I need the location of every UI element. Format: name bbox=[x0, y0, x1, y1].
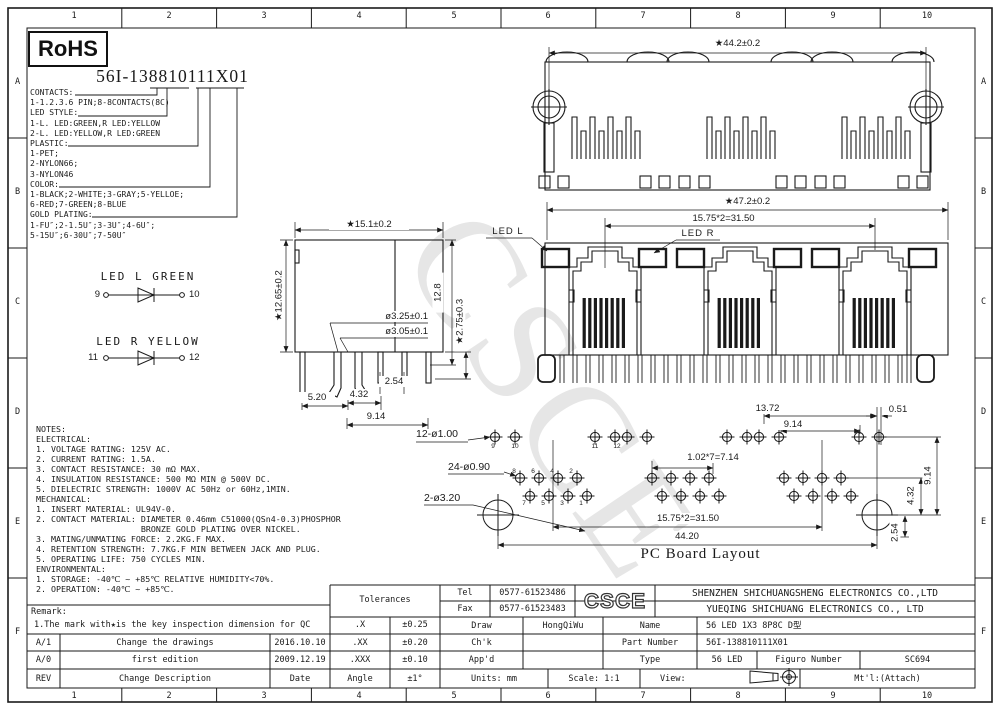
dim-520: 5.20 bbox=[299, 392, 335, 403]
pcb-pin-label: 8 bbox=[509, 468, 519, 476]
tol-val: ±0.10 bbox=[390, 655, 440, 665]
notes-block: NOTES: ELECTRICAL: 1. VOLTAGE RATING: 12… bbox=[36, 424, 341, 594]
col-label: 9 bbox=[818, 11, 848, 21]
pcb-dim-051: 0.51 bbox=[884, 404, 912, 415]
rev-id: A/0 bbox=[27, 655, 60, 665]
pcb-pin-label: 12 bbox=[612, 443, 622, 451]
pcb-dim-714: 1.02*7=7.14 bbox=[681, 452, 745, 463]
led-l-title: LED L GREEN bbox=[93, 271, 203, 284]
dim-side-depth: 12.8 bbox=[432, 273, 443, 313]
col-label: 3 bbox=[249, 11, 279, 21]
scale-label: Scale: 1:1 bbox=[548, 674, 640, 684]
col-label: 1 bbox=[59, 691, 89, 701]
dim-front-pitch: 15.75*2=31.50 bbox=[676, 213, 771, 224]
dim-side-width: ★15.1±0.2 bbox=[329, 219, 409, 230]
view-label: View: bbox=[660, 674, 710, 684]
figure-number-label: Figuro Number bbox=[757, 655, 860, 665]
company-line-1: SHENZHEN SHICHUANGSHENG ELECTRONICS CO.,… bbox=[657, 588, 973, 599]
col-label: 5 bbox=[439, 11, 469, 21]
pcb-pin-label: 3 bbox=[557, 500, 567, 508]
pcb-pin-holes-label: 24-ø0.90 bbox=[448, 461, 510, 473]
tel-label: Tel bbox=[440, 588, 490, 598]
row-label: E bbox=[974, 517, 993, 527]
col-label: 3 bbox=[249, 691, 279, 701]
pcb-pin-label: 7 bbox=[519, 500, 529, 508]
fax-value: 0577-61523483 bbox=[490, 604, 575, 614]
pcb-led-holes-label: 12-ø1.00 bbox=[416, 428, 478, 440]
label-led-r: LED R bbox=[676, 228, 720, 239]
col-label: 2 bbox=[154, 11, 184, 21]
led-l-pin-a: 9 bbox=[80, 289, 100, 300]
dim-914: 9.14 bbox=[358, 411, 394, 422]
dim-hole-b: ø3.05±0.1 bbox=[352, 326, 428, 337]
pcb-dim-914h: 9.14 bbox=[776, 419, 810, 430]
row-label: B bbox=[8, 187, 27, 197]
col-label: 4 bbox=[344, 691, 374, 701]
row-label: A bbox=[974, 77, 993, 87]
pcb-dim-4420: 44.20 bbox=[666, 531, 708, 542]
tolerances-header: Tolerances bbox=[330, 595, 440, 605]
dim-hole-a: ø3.25±0.1 bbox=[352, 311, 428, 322]
units-label: Units: mm bbox=[440, 674, 548, 684]
pcb-pin-label: 2 bbox=[566, 468, 576, 476]
row-label: A bbox=[8, 77, 27, 87]
rev-date: 2009.12.19 bbox=[270, 655, 330, 665]
row-label: F bbox=[974, 627, 993, 637]
rev-desc: first edition bbox=[60, 655, 270, 665]
pcb-pin-label: 5 bbox=[538, 500, 548, 508]
dim-254: 2.54 bbox=[379, 376, 409, 387]
type-label: Type bbox=[603, 655, 697, 665]
pcb-pin-label: 9 bbox=[488, 443, 498, 451]
col-label: 4 bbox=[344, 11, 374, 21]
col-label: 2 bbox=[154, 691, 184, 701]
company-line-2: YUEQING SHICHUANG ELECTRONICS CO., LTD bbox=[657, 604, 973, 615]
dim-432: 4.32 bbox=[341, 389, 377, 400]
col-label: 5 bbox=[439, 691, 469, 701]
pcb-pin-label: 4 bbox=[547, 468, 557, 476]
led-r-title: LED R YELLOW bbox=[93, 336, 203, 349]
part-number-breakdown: CONTACTS: 1-1.2.3.6 PIN;8-8CONTACTS(8C) … bbox=[30, 88, 184, 241]
col-label: 7 bbox=[628, 11, 658, 21]
led-r-pin-b: 12 bbox=[189, 352, 209, 363]
pcb-title: PC Board Layout bbox=[628, 546, 773, 564]
tel-value: 0577-61523486 bbox=[490, 588, 575, 598]
figure-number-value: SC694 bbox=[860, 655, 975, 665]
remark-label: Remark: bbox=[31, 607, 67, 617]
rohs-logo: RoHS bbox=[28, 31, 108, 67]
tol-key: .XX bbox=[330, 638, 390, 648]
pcb-pin-label: 11 bbox=[590, 443, 600, 451]
rev-id: A/1 bbox=[27, 638, 60, 648]
col-label: 8 bbox=[723, 691, 753, 701]
remark-line: 1.The mark with★is the key inspection di… bbox=[34, 620, 310, 630]
drawing-sheet: CSCE bbox=[0, 0, 1000, 710]
row-label: D bbox=[8, 407, 27, 417]
led-l-pin-b: 10 bbox=[189, 289, 209, 300]
fax-label: Fax bbox=[440, 604, 490, 614]
rev-desc: Change Description bbox=[60, 674, 270, 684]
tol-key: Angle bbox=[330, 674, 390, 684]
col-label: 10 bbox=[912, 11, 942, 21]
draw-label: Draw bbox=[440, 621, 523, 631]
pcb-dim-432v: 4.32 bbox=[905, 479, 916, 513]
part-number-value: 56I-138810111X01 bbox=[706, 638, 971, 648]
row-label: B bbox=[974, 187, 993, 197]
rev-date: Date bbox=[270, 674, 330, 684]
col-label: 10 bbox=[912, 691, 942, 701]
label-led-l: LED L bbox=[486, 226, 530, 237]
row-label: C bbox=[8, 297, 27, 307]
name-value: 56 LED 1X3 8P8C D型 bbox=[706, 621, 971, 631]
tol-key: .X bbox=[330, 620, 390, 630]
col-label: 9 bbox=[818, 691, 848, 701]
csce-logo: CSCE bbox=[575, 590, 655, 615]
tol-val: ±0.20 bbox=[390, 638, 440, 648]
dim-side-tail: ★2.75±0.3 bbox=[454, 292, 465, 352]
pcb-dim-3150: 15.75*2=31.50 bbox=[645, 513, 731, 524]
dim-top-width: ★44.2±0.2 bbox=[690, 38, 785, 49]
col-label: 7 bbox=[628, 691, 658, 701]
draw-value: HongQiWu bbox=[523, 621, 603, 631]
col-label: 1 bbox=[59, 11, 89, 21]
pcb-pin-label: 1 bbox=[576, 500, 586, 508]
row-label: F bbox=[8, 627, 27, 637]
rev-desc: Change the drawings bbox=[60, 638, 270, 648]
row-label: D bbox=[974, 407, 993, 417]
led-r-pin-a: 11 bbox=[78, 352, 98, 363]
dim-front-width: ★47.2±0.2 bbox=[700, 196, 795, 207]
type-value: 56 LED bbox=[697, 655, 757, 665]
appd-label: App'd bbox=[440, 655, 523, 665]
material-label: Mt'l:(Attach) bbox=[800, 674, 975, 684]
pcb-dim-914v: 9.14 bbox=[922, 459, 933, 493]
name-label: Name bbox=[603, 621, 697, 631]
part-number-heading: 56I-138810111X01 bbox=[90, 66, 255, 87]
pcb-pin-label: 10 bbox=[510, 443, 520, 451]
dim-side-height: ★12.65±0.2 bbox=[273, 256, 284, 336]
col-label: 6 bbox=[533, 691, 563, 701]
pcb-mount-holes-label: 2-ø3.20 bbox=[424, 492, 480, 504]
tol-val: ±1° bbox=[390, 674, 440, 684]
tol-key: .XXX bbox=[330, 655, 390, 665]
pcb-pin-label: 6 bbox=[528, 468, 538, 476]
rev-date: 2016.10.10 bbox=[270, 638, 330, 648]
row-label: E bbox=[8, 517, 27, 527]
tol-val: ±0.25 bbox=[390, 620, 440, 630]
row-label: C bbox=[974, 297, 993, 307]
col-label: 6 bbox=[533, 11, 563, 21]
chk-label: Ch'k bbox=[440, 638, 523, 648]
col-label: 8 bbox=[723, 11, 753, 21]
pcb-dim-254v: 2.54 bbox=[889, 516, 900, 550]
part-number-label: Part Number bbox=[603, 638, 697, 648]
pcb-dim-1372: 13.72 bbox=[745, 403, 790, 414]
rev-id: REV bbox=[27, 674, 60, 684]
